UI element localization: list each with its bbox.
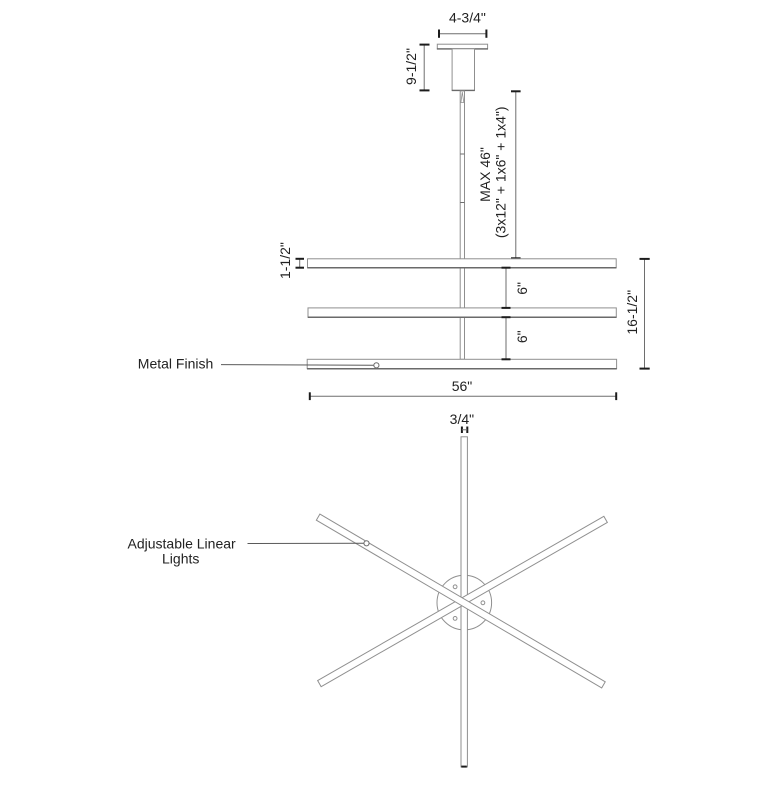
svg-text:16-1/2": 16-1/2" <box>624 290 640 335</box>
svg-text:3/4": 3/4" <box>450 411 474 427</box>
svg-text:1-1/2": 1-1/2" <box>277 242 293 279</box>
svg-text:56": 56" <box>452 378 473 394</box>
svg-text:Lights: Lights <box>162 551 199 567</box>
svg-text:9-1/2": 9-1/2" <box>403 48 419 85</box>
svg-text:6": 6" <box>514 282 530 295</box>
svg-text:Metal Finish: Metal Finish <box>138 356 213 372</box>
svg-text:(3x12" + 1x6" + 1x4"): (3x12" + 1x6" + 1x4") <box>493 106 509 238</box>
svg-text:MAX 46": MAX 46" <box>477 147 493 202</box>
svg-text:4-3/4": 4-3/4" <box>449 9 486 25</box>
svg-text:Adjustable Linear: Adjustable Linear <box>128 536 237 552</box>
svg-text:6": 6" <box>514 330 530 343</box>
